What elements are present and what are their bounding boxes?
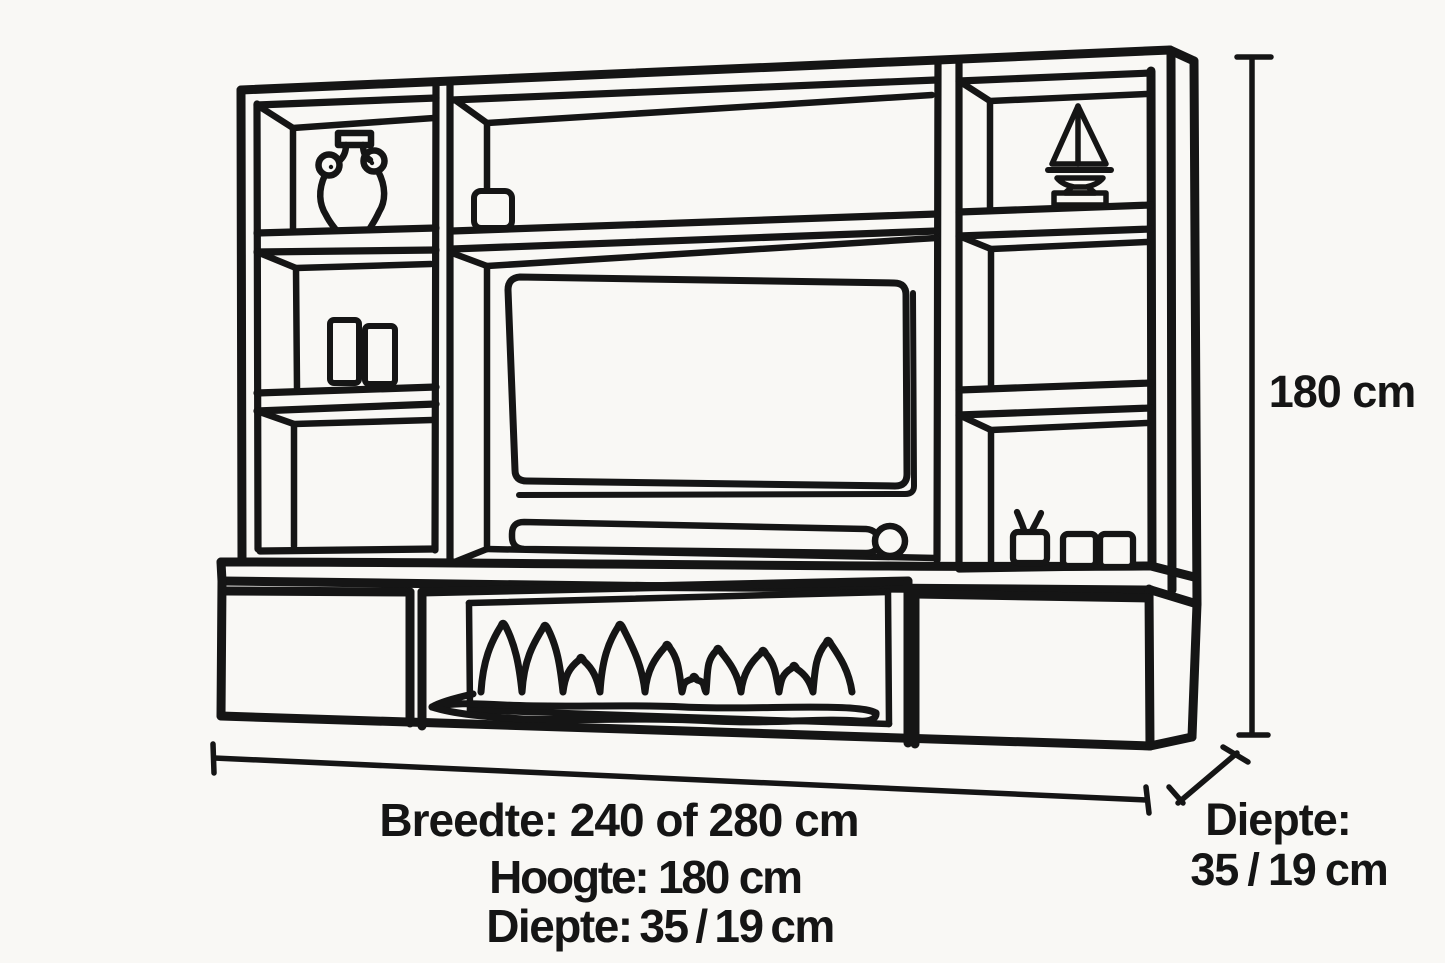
svg-text:Diepte:: Diepte:: [1205, 794, 1351, 845]
svg-text:Hoogte: 180 cm: Hoogte: 180 cm: [489, 851, 801, 903]
svg-text:Breedte: 240 of 280 cm: Breedte: 240 of 280 cm: [379, 794, 858, 846]
svg-text:180 cm: 180 cm: [1269, 366, 1416, 417]
svg-text:Diepte: 35 / 19 cm: Diepte: 35 / 19 cm: [486, 900, 834, 952]
svg-text:35 / 19 cm: 35 / 19 cm: [1190, 844, 1387, 895]
